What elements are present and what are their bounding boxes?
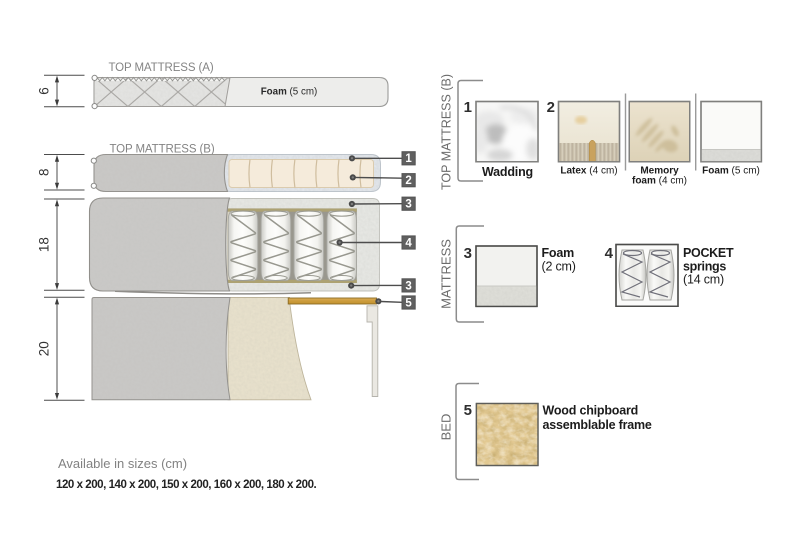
- svg-text:1: 1: [405, 153, 412, 165]
- svg-text:2: 2: [547, 99, 555, 116]
- svg-text:6: 6: [37, 87, 52, 95]
- svg-text:5: 5: [405, 297, 412, 309]
- svg-text:TOP MATTRESS (B): TOP MATTRESS (B): [109, 144, 214, 156]
- svg-text:Foam (5 cm): Foam (5 cm): [702, 166, 760, 177]
- svg-text:18: 18: [37, 237, 52, 252]
- svg-text:(2 cm): (2 cm): [542, 259, 576, 273]
- svg-text:Latex (4 cm): Latex (4 cm): [560, 166, 617, 177]
- svg-text:springs: springs: [683, 259, 726, 273]
- svg-text:BED: BED: [439, 414, 454, 441]
- svg-text:foam (4 cm): foam (4 cm): [632, 176, 687, 187]
- svg-text:Available in sizes (cm): Available in sizes (cm): [58, 456, 187, 471]
- svg-text:5: 5: [464, 402, 472, 419]
- svg-text:MATTRESS: MATTRESS: [439, 239, 454, 309]
- svg-text:4: 4: [405, 237, 412, 249]
- svg-text:3: 3: [464, 245, 472, 262]
- svg-text:3: 3: [405, 280, 411, 292]
- svg-text:4: 4: [605, 245, 614, 262]
- svg-text:TOP MATTRESS (B): TOP MATTRESS (B): [440, 74, 454, 190]
- svg-text:assemblable frame: assemblable frame: [543, 418, 652, 432]
- svg-text:1: 1: [464, 99, 472, 116]
- svg-text:(14 cm): (14 cm): [683, 273, 724, 287]
- svg-text:Foam (5 cm): Foam (5 cm): [261, 86, 318, 97]
- svg-text:Foam: Foam: [542, 246, 575, 260]
- svg-text:20: 20: [37, 341, 52, 356]
- svg-text:2: 2: [405, 175, 411, 187]
- svg-text:3: 3: [405, 199, 411, 211]
- svg-text:POCKET: POCKET: [683, 246, 734, 260]
- svg-text:Wood chipboard: Wood chipboard: [543, 403, 639, 417]
- svg-text:TOP MATTRESS (A): TOP MATTRESS (A): [108, 62, 213, 74]
- svg-text:120 x 200, 140 x 200, 150 x 20: 120 x 200, 140 x 200, 150 x 200, 160 x 2…: [56, 479, 317, 491]
- svg-text:8: 8: [37, 168, 52, 176]
- svg-text:Wadding: Wadding: [482, 165, 533, 179]
